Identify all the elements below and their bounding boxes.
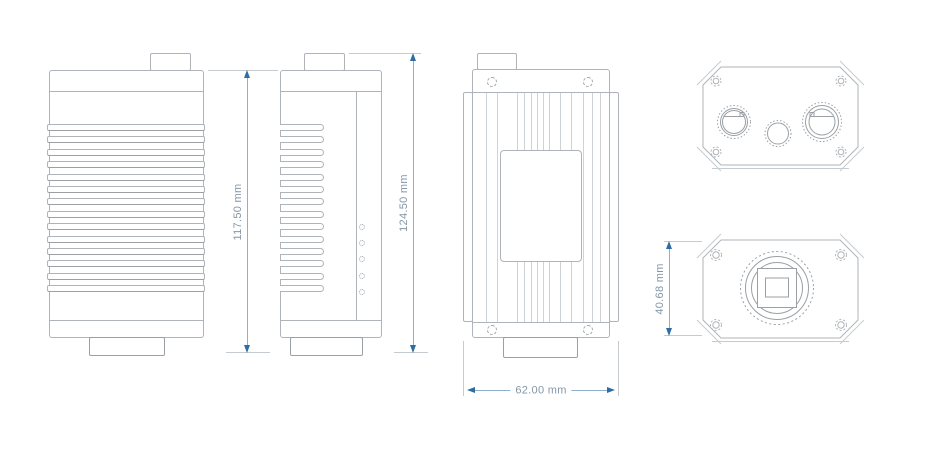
rib-line <box>583 93 584 322</box>
dimension-line <box>247 76 248 347</box>
heatsink-fin <box>47 211 205 218</box>
heatsink-fin-side <box>280 211 324 218</box>
heatsink-fin-side <box>280 273 324 280</box>
heatsink-fin-side <box>280 260 324 267</box>
rib-line <box>600 93 601 322</box>
extension-line <box>618 341 619 396</box>
status-led <box>359 224 365 230</box>
corner-screw-hole <box>583 77 593 87</box>
extension-line <box>463 341 464 396</box>
arrow-down-icon <box>244 345 250 353</box>
heatsink-fin <box>47 174 205 181</box>
heatsink-fin <box>47 186 205 193</box>
technical-drawing: 117.50 mm 124.50 mm 62.00 mm 40.68 mm <box>0 0 949 449</box>
heatsink-fin <box>47 161 205 168</box>
dimension-face-height: 40.68 mm <box>665 241 674 336</box>
heatsink-fin-side <box>280 124 324 131</box>
dimension-line <box>669 247 670 330</box>
heatsink-fin <box>47 223 205 230</box>
arrow-down-icon <box>410 345 416 353</box>
heatsink-fin <box>47 285 205 292</box>
corner-screw-hole <box>583 325 593 335</box>
arrow-right-icon <box>607 387 615 393</box>
heatsink-fin-side <box>280 174 324 181</box>
heatsink-fin-side <box>280 198 324 205</box>
heatsink-fin-side <box>280 149 324 156</box>
dimension-body-width: 62.00 mm <box>467 386 615 395</box>
arrow-up-icon <box>244 70 250 78</box>
arrow-left-icon <box>467 387 475 393</box>
heatsink-fin-side <box>280 223 324 230</box>
rib-line <box>497 93 498 322</box>
status-led <box>359 289 365 295</box>
heatsink-fin-side <box>280 236 324 243</box>
front-face-view <box>697 234 864 344</box>
heatsink-fin-side <box>280 186 324 193</box>
rib-line <box>486 93 487 322</box>
dimension-overall-height: 124.50 mm <box>409 53 418 353</box>
heatsink-fin-side <box>280 136 324 143</box>
heatsink-fin <box>47 124 205 131</box>
heatsink-fin <box>47 260 205 267</box>
arrow-up-icon <box>666 241 672 249</box>
arrow-up-icon <box>410 53 416 61</box>
heatsink-fin <box>47 248 205 255</box>
dimension-label-face-height: 40.68 mm <box>654 263 666 314</box>
sensor-holder <box>758 269 797 308</box>
status-led <box>359 273 365 279</box>
top-face-view <box>697 61 864 171</box>
heatsink-fin <box>47 198 205 205</box>
heatsink-fin <box>47 236 205 243</box>
heatsink-fin <box>47 149 205 156</box>
rear-view-label-plate <box>500 150 582 262</box>
dimension-label-body-width: 62.00 mm <box>510 384 571 396</box>
dimension-body-height: 117.50 mm <box>243 70 252 353</box>
heatsink-fin-side <box>280 248 324 255</box>
heatsink-fin-side <box>280 161 324 168</box>
dimension-line <box>413 59 414 347</box>
heatsink-fin <box>47 273 205 280</box>
heatsink-fin <box>47 136 205 143</box>
corner-screw-hole <box>487 325 497 335</box>
dimension-label-body-height: 117.50 mm <box>232 183 244 240</box>
heatsink-fin-side <box>280 285 324 292</box>
arrow-down-icon <box>666 328 672 336</box>
rib-line <box>592 93 593 322</box>
corner-screw-hole <box>487 77 497 87</box>
dimension-label-overall-height: 124.50 mm <box>398 174 410 232</box>
